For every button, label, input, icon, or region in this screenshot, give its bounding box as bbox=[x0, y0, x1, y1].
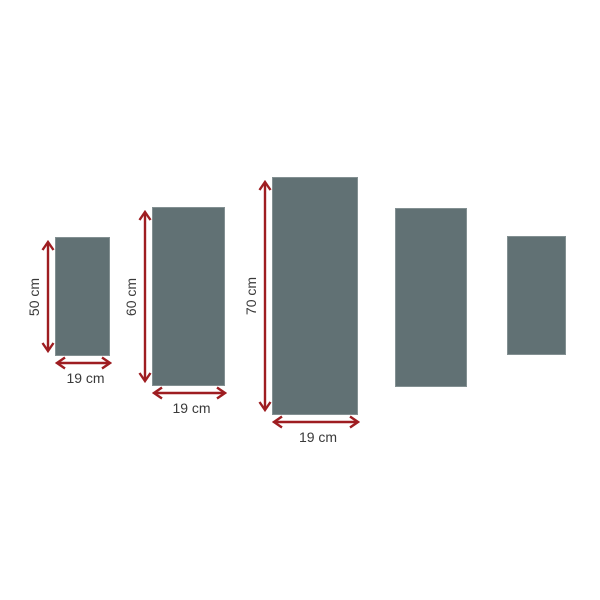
panel-1-height-label: 50 cm bbox=[27, 277, 41, 315]
panel-2-height-label: 60 cm bbox=[124, 277, 138, 315]
panel-3-width-arrow-icon bbox=[272, 414, 360, 430]
panel-3-width-label: 19 cm bbox=[299, 430, 337, 444]
panel-3-height-label: 70 cm bbox=[244, 277, 258, 315]
panel-5 bbox=[507, 236, 566, 355]
panel-dimensions-diagram: 50 cm19 cm60 cm19 cm70 cm19 cm bbox=[0, 0, 600, 600]
panel-2-width-label: 19 cm bbox=[172, 401, 210, 415]
panel-3-height-arrow-icon bbox=[257, 180, 273, 412]
panel-1-width-label: 19 cm bbox=[66, 371, 104, 385]
panel-2 bbox=[152, 207, 225, 386]
panel-4 bbox=[395, 208, 467, 387]
panel-1-height-arrow-icon bbox=[40, 240, 56, 353]
panel-2-width-arrow-icon bbox=[152, 385, 227, 401]
panel-1 bbox=[55, 237, 110, 356]
panel-3 bbox=[272, 177, 358, 415]
panel-2-height-arrow-icon bbox=[137, 210, 153, 383]
panel-1-width-arrow-icon bbox=[55, 355, 112, 371]
